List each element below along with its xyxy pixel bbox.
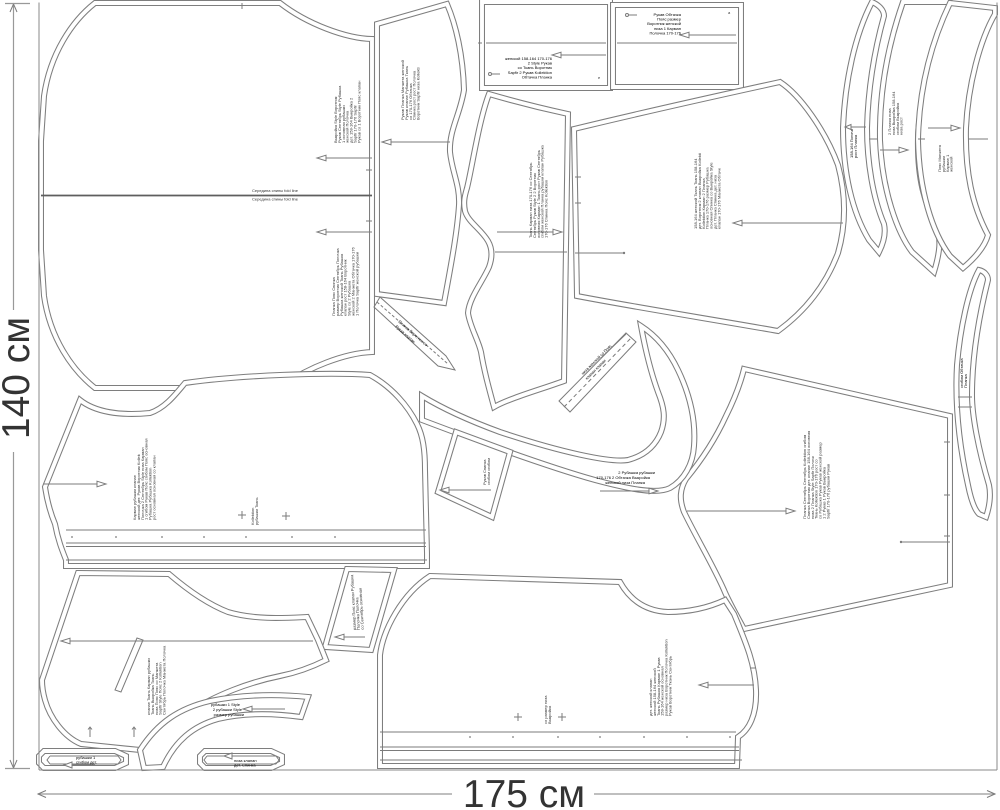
svg-text:размер рубашки: размер рубашки [214, 712, 244, 717]
svg-text:140 см: 140 см [0, 317, 38, 439]
svg-text:сгибом дет.: сгибом дет. [76, 760, 97, 765]
svg-text:Середина спины fold line: Середина спины fold line [252, 188, 299, 193]
svg-text:Рукав Спинкасгибом сгибом: Рукав Спинкасгибом сгибом [482, 458, 491, 485]
svg-text:дет. Спинка: дет. Спинка [234, 763, 256, 768]
svg-text:женской низа Планка: женской низа Планка [605, 480, 646, 485]
svg-text:Середина спины fold line: Середина спины fold line [252, 197, 299, 202]
svg-text:175 см: 175 см [463, 773, 585, 810]
